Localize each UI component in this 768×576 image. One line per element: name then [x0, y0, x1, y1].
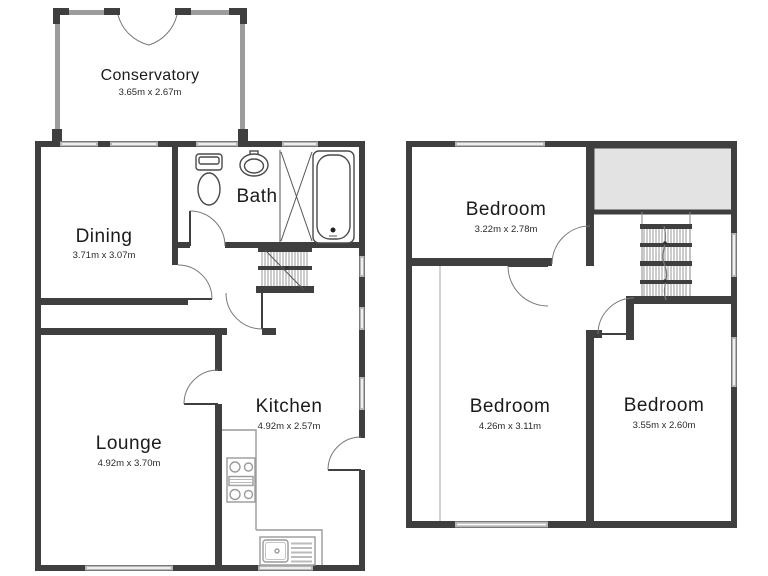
room-label: Dining [76, 226, 133, 247]
room-label: Bedroom [624, 395, 705, 416]
lounge-door-arc [184, 370, 218, 404]
room-label: Conservatory [101, 67, 200, 84]
room-dimensions: 3.71m x 3.07m [73, 250, 136, 261]
room-dimensions: 4.92m x 2.57m [258, 421, 321, 432]
room-label: Kitchen [256, 396, 323, 417]
room-dimensions: 4.92m x 3.70m [98, 458, 161, 469]
wash-basin-icon [240, 151, 268, 176]
kitchen-door-arc [226, 293, 262, 329]
ground-floor-plan: Conservatory 3.65m x 2.67m Dining 3.71m … [35, 8, 365, 571]
kitchen-sink-icon [260, 537, 315, 565]
room-label: Bath [236, 186, 277, 207]
floor-plan-image: Conservatory 3.65m x 2.67m Dining 3.71m … [0, 0, 768, 576]
back-door-arc [328, 437, 361, 470]
room-label: Bedroom [466, 199, 547, 220]
bedroom1-door-arc [552, 226, 590, 264]
room-dimensions: 3.22m x 2.78m [475, 224, 538, 235]
floorplan-canvas: Conservatory 3.65m x 2.67m Dining 3.71m … [0, 0, 768, 576]
staircase-icon [637, 212, 695, 303]
bedroom2-door-arc [508, 266, 548, 306]
bathtub-icon [313, 151, 354, 243]
toilet-icon [196, 154, 222, 205]
hob-icon [227, 458, 255, 502]
room-label: Lounge [96, 433, 162, 454]
first-floor-plan: Bedroom 3.22m x 2.78m Bedroom 4.26m x 3.… [406, 141, 737, 528]
dining-door-arc [178, 265, 212, 299]
room-dimensions: 4.26m x 3.11m [479, 421, 541, 432]
shower-icon [280, 150, 312, 242]
room-dimensions: 3.65m x 2.67m [119, 87, 182, 98]
bath-door-arc [190, 211, 225, 246]
room-label: Bedroom [470, 396, 551, 417]
storage-void-area [592, 146, 734, 212]
french-doors-icon [118, 15, 177, 45]
staircase-icon [256, 248, 314, 293]
room-dimensions: 3.55m x 2.60m [633, 420, 696, 431]
